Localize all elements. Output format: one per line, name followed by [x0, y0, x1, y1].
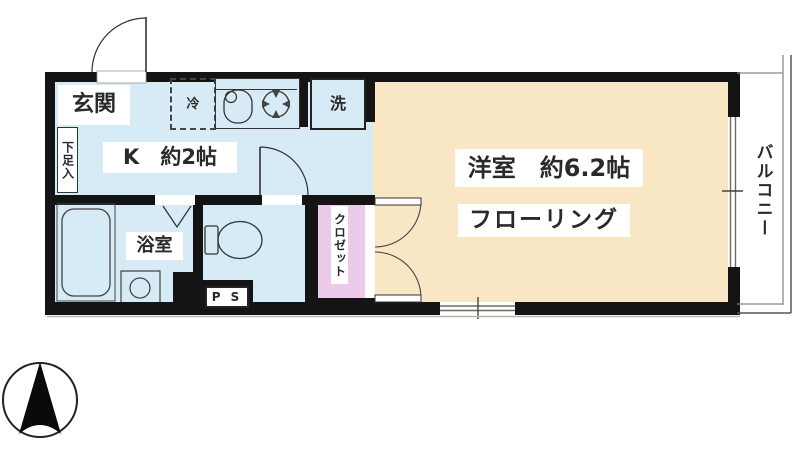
wall-segment	[305, 298, 375, 315]
western-room-label: 洋室 約6.2帖	[455, 149, 643, 187]
wall-segment	[195, 195, 262, 205]
entrance-door-swing	[92, 17, 146, 83]
floorplan-canvas: 冷 洗 P S 玄関 下足入 K 約2帖 浴室 洋室 約6.2帖 フローリング …	[0, 0, 800, 457]
refrigerator-label: 冷	[186, 98, 199, 111]
washer-label: 洗	[330, 96, 346, 112]
entrance-label: 玄関	[58, 85, 130, 125]
kitchen-label: K 約2帖	[103, 142, 237, 173]
closet-doorway	[365, 205, 375, 298]
balcony-label: バルコニー	[749, 128, 775, 252]
closet-label: クロゼット	[331, 206, 348, 284]
shoe-cabinet-label: 下足入	[57, 127, 78, 193]
refrigerator-space: 冷	[170, 78, 216, 130]
flooring-label: フローリング	[458, 204, 630, 237]
kitchen-counter	[215, 78, 300, 129]
pipe-space-label: P S	[212, 291, 243, 303]
wall-segment	[305, 205, 318, 298]
wall-segment	[45, 72, 55, 315]
wall-segment	[728, 72, 740, 117]
wall-segment	[302, 195, 375, 205]
wall-segment	[300, 78, 308, 127]
wall-segment	[515, 302, 740, 315]
wall-segment	[173, 272, 203, 315]
wall-segment	[55, 195, 155, 205]
western-room-floor	[373, 82, 728, 302]
washer-space: 洗	[310, 78, 366, 130]
pipe-space: P S	[205, 286, 249, 308]
wall-segment	[728, 267, 740, 315]
north-arrow-icon	[3, 362, 77, 437]
bathroom-label: 浴室	[126, 232, 183, 260]
